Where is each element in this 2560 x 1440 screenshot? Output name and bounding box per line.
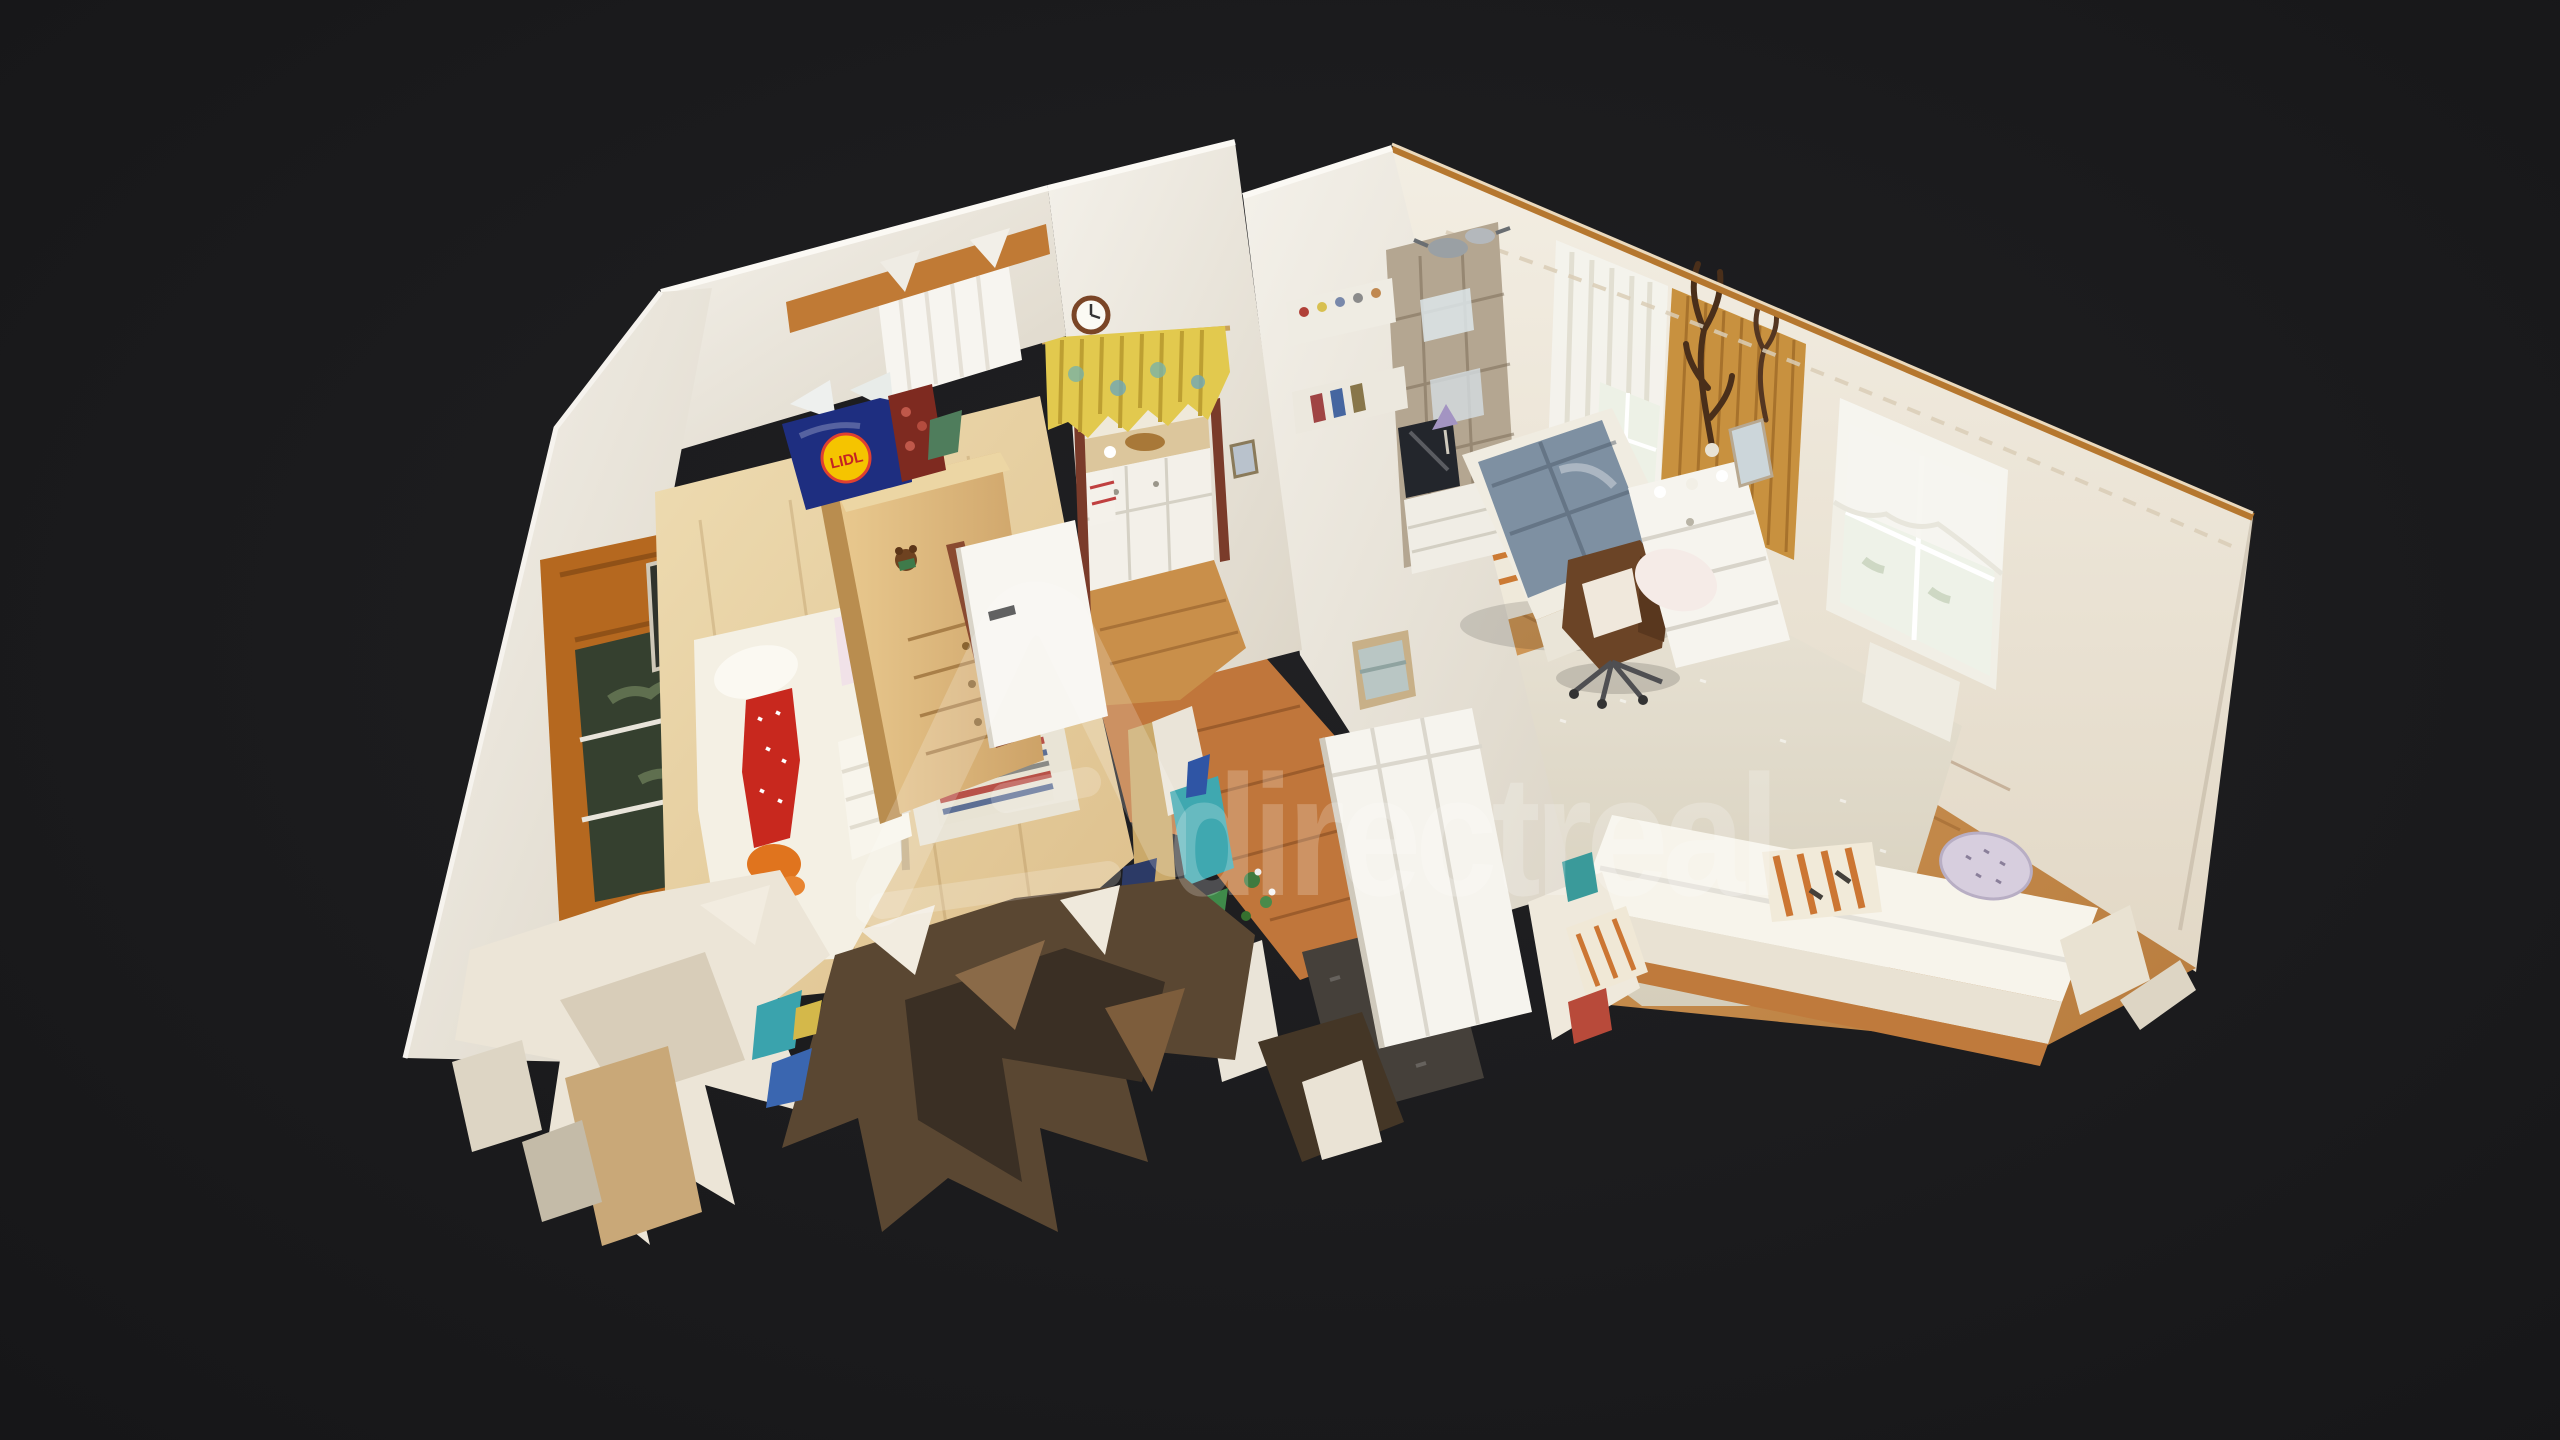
- drawer-knob-2: [968, 680, 976, 688]
- cabinet-handle-2: [1153, 481, 1159, 487]
- tv: [1398, 416, 1460, 498]
- valance-floral-3: [1150, 362, 1166, 378]
- valance-floral-2: [1110, 380, 1126, 396]
- trinket-h: [1716, 470, 1728, 482]
- antler-skull: [1705, 443, 1719, 457]
- trinket-b: [1317, 302, 1327, 312]
- plant-leaf-3: [1241, 911, 1251, 921]
- embroidered-cloth: [1086, 468, 1116, 526]
- apple-1: [901, 407, 911, 417]
- valance-floral-1: [1068, 366, 1084, 382]
- striped-cushion: [1762, 842, 1882, 922]
- virtual-tour-stage: LIDL directreal: [0, 0, 2560, 1440]
- small-picture: [1231, 441, 1257, 477]
- white-jug: [1104, 446, 1116, 458]
- chair-wheel-3: [1638, 695, 1648, 705]
- plant-leaf-2: [1260, 896, 1272, 908]
- dollhouse-3d-view[interactable]: LIDL: [0, 0, 2560, 1440]
- trinket-g: [1686, 478, 1698, 490]
- plant-flower-2: [1269, 889, 1276, 896]
- chair-wheel-2: [1597, 699, 1607, 709]
- dresser-knob-1: [1686, 518, 1694, 526]
- pot-1: [1428, 238, 1468, 258]
- apple-2: [917, 421, 927, 431]
- valance-floral-4: [1191, 375, 1205, 389]
- drawer-knob-3: [974, 718, 982, 726]
- chair-wheel-1: [1569, 689, 1579, 699]
- pot-2: [1465, 228, 1495, 244]
- framed-painting: [1352, 630, 1416, 710]
- trinket-e: [1371, 288, 1381, 298]
- trinket-f: [1654, 486, 1666, 498]
- wall-clock: [1074, 298, 1108, 332]
- trinket-a: [1299, 307, 1309, 317]
- teddy-ear-2: [909, 545, 917, 553]
- bread-basket: [1125, 433, 1165, 451]
- drawer-knob-1: [962, 642, 970, 650]
- apple-3: [905, 441, 915, 451]
- red-pillow: [742, 688, 800, 848]
- trinket-c: [1335, 297, 1345, 307]
- teddy-ear-1: [895, 547, 903, 555]
- plant-flower-1: [1255, 869, 1262, 876]
- trinket-d: [1353, 293, 1363, 303]
